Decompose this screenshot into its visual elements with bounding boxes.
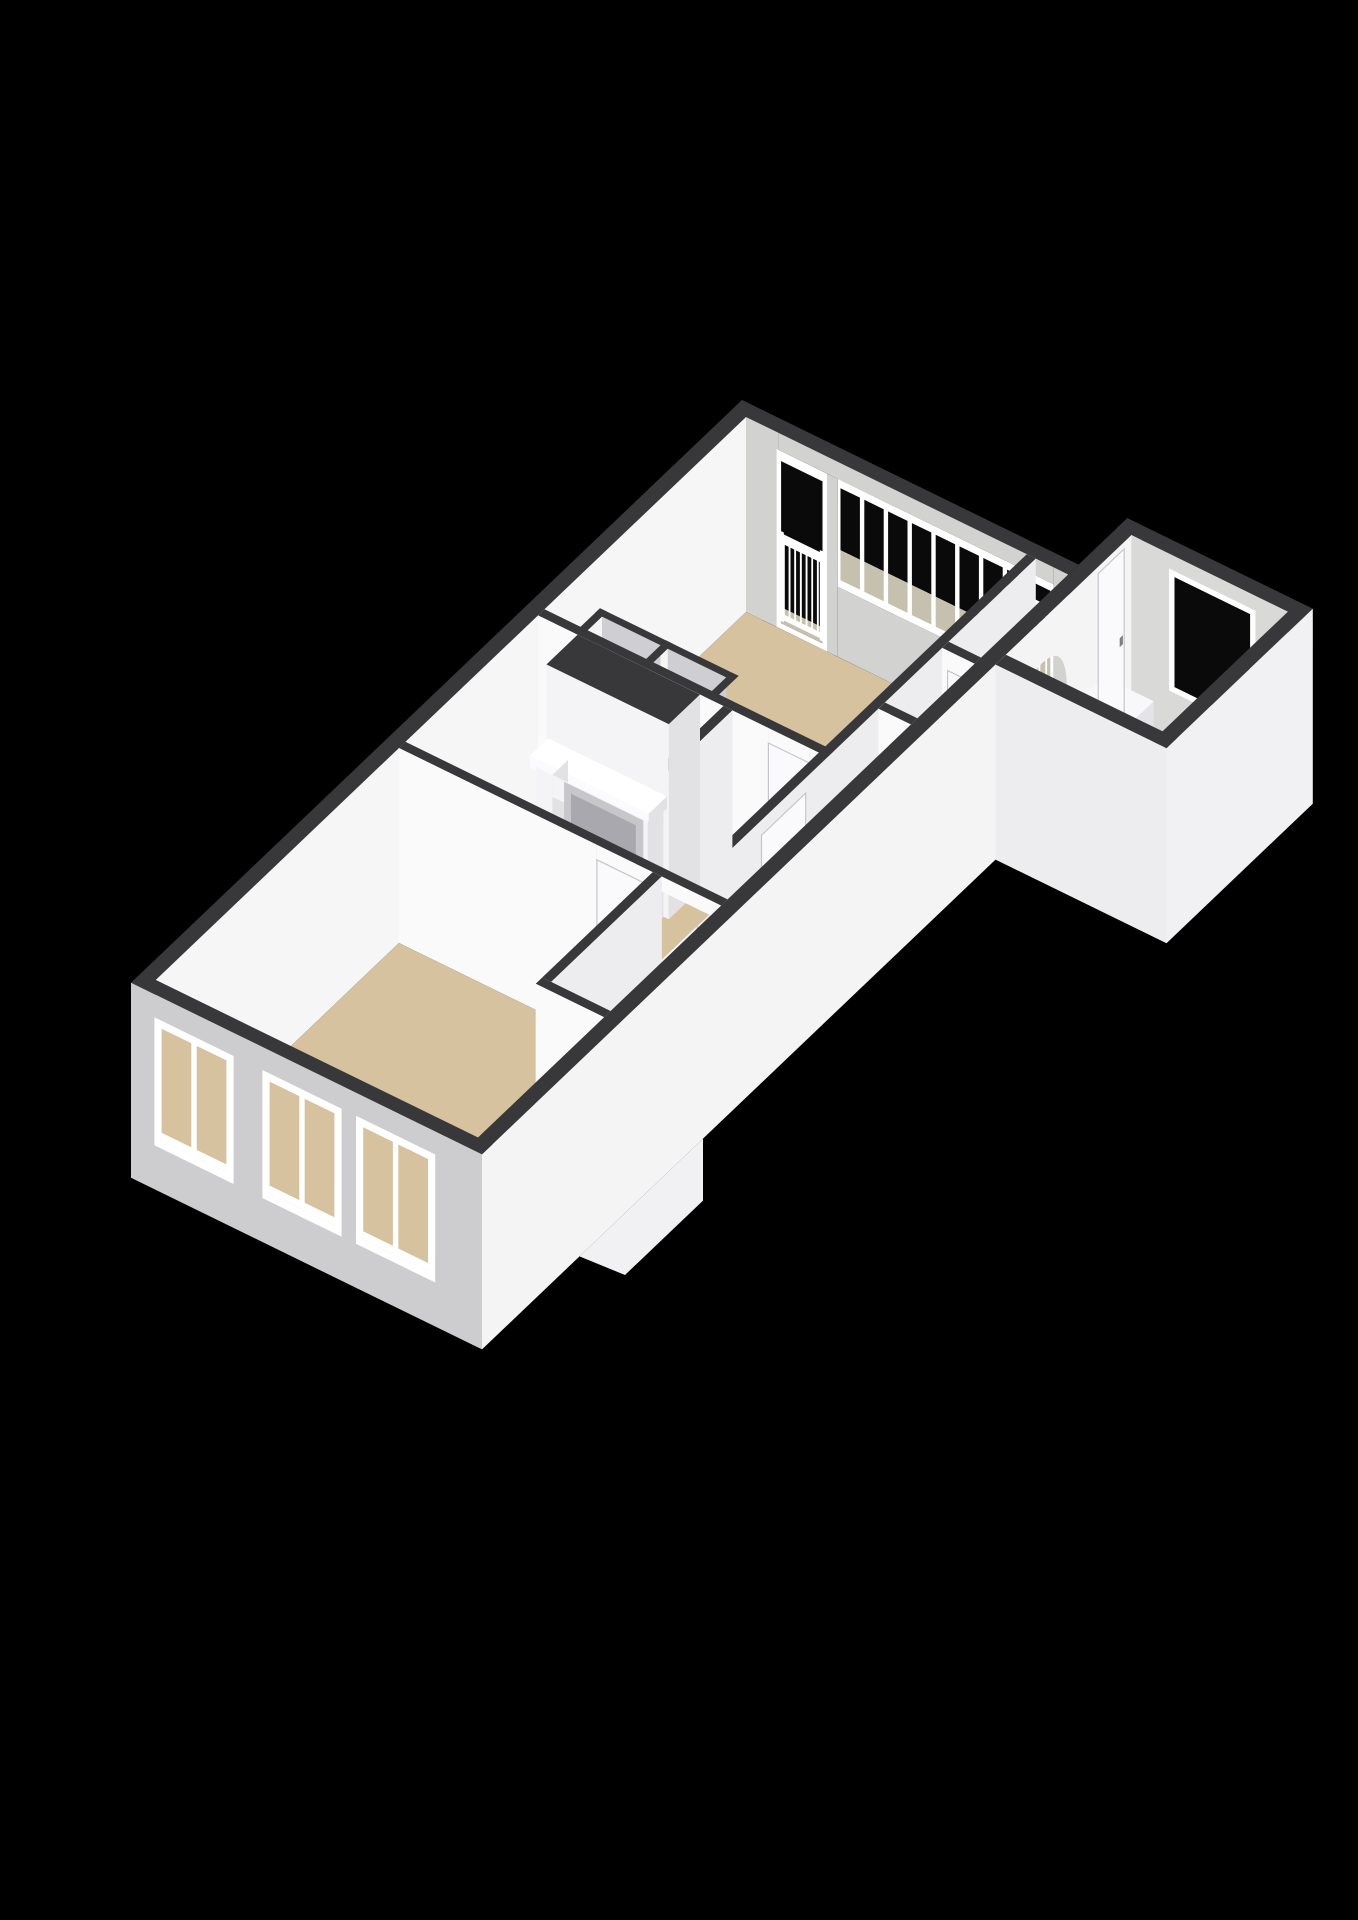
facade-window-2-mullion	[299, 1096, 304, 1211]
railing-post	[780, 531, 784, 623]
ne-wall-left-section	[746, 417, 778, 628]
balcony-window-pane	[912, 523, 931, 594]
facade-window-3-mullion	[393, 1142, 398, 1257]
balcony-window-pane	[888, 511, 907, 583]
railing-baluster	[794, 548, 796, 623]
balcony-window-pane	[864, 500, 883, 572]
railing-baluster	[811, 556, 813, 631]
floorplan-3d-render	[0, 0, 1358, 1920]
balcony-window-pane	[936, 535, 955, 607]
railing-baluster	[806, 553, 808, 628]
facade-window-1-mullion	[191, 1043, 196, 1158]
floorplan-stage	[0, 0, 1358, 1920]
railing-baluster	[789, 545, 791, 620]
railing-baluster	[817, 559, 819, 634]
railing-baluster	[800, 550, 802, 625]
ne-wall-pillar	[827, 474, 838, 657]
railing-post	[820, 550, 824, 642]
balcony-window-pane	[841, 488, 860, 559]
